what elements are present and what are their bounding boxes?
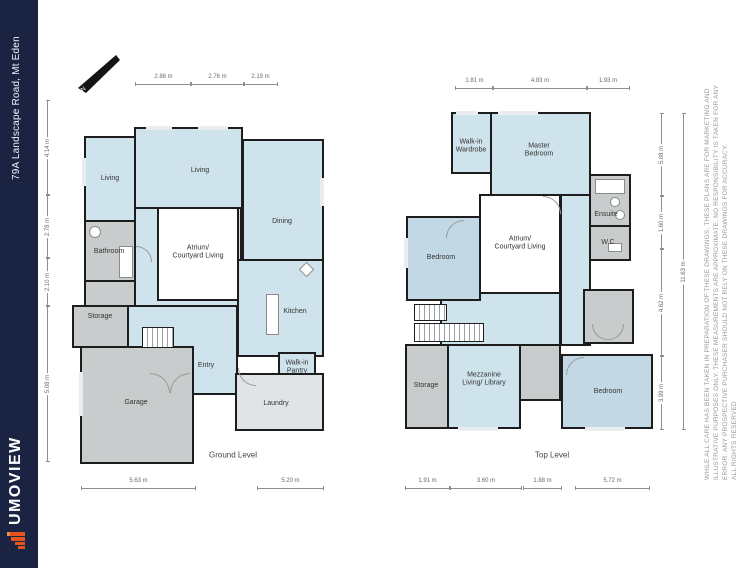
room-label: Storage xyxy=(414,382,439,390)
room-label: Ensuite xyxy=(594,211,617,219)
stairs-top-upper xyxy=(414,304,447,321)
window xyxy=(146,126,172,130)
room-hall-nook xyxy=(84,280,136,307)
dim-label: 2.19 m xyxy=(249,74,271,80)
dim-label: 11.63 m xyxy=(681,259,687,284)
plan-title-ground: Ground Level xyxy=(209,451,257,460)
dim-label: 5.08 m xyxy=(659,144,665,166)
window xyxy=(320,178,324,206)
dim-label: 2.86 m xyxy=(152,74,174,80)
ensuite-bath xyxy=(595,179,625,194)
dim-label: 4.14 m xyxy=(45,137,51,159)
room-storage-ground xyxy=(72,305,129,348)
room-label: Bedroom xyxy=(594,388,622,396)
dim-label: 2.78 m xyxy=(45,215,51,237)
dim-label: 5.20 m xyxy=(279,478,301,484)
room-label: Entry xyxy=(198,362,214,370)
room-label: Atrium/ Courtyard Living xyxy=(488,236,552,253)
room-label: Dining xyxy=(272,218,292,226)
brand-sidebar: 79A Landscape Road, Mt Eden UMOVIEW xyxy=(0,0,38,568)
window xyxy=(498,111,538,115)
room-kitchen xyxy=(237,259,324,357)
stairs-top-lower xyxy=(414,323,484,342)
kitchen-island xyxy=(266,294,279,335)
dim-label: 1.93 m xyxy=(597,78,619,84)
window xyxy=(585,427,625,431)
disclaimer-line: WHILE ALL CARE HAS BEEN TAKEN IN PREPARA… xyxy=(703,50,712,480)
plan-title-top: Top Level xyxy=(535,451,569,460)
dim-label: 3.99 m xyxy=(659,381,665,403)
umoview-logo-icon xyxy=(6,530,26,550)
property-address: 79A Landscape Road, Mt Eden xyxy=(11,20,22,180)
disclaimer-line: ERROR. ANY PROSPECTIVE PURCHASER SHOULD … xyxy=(721,50,730,480)
dim-label: 1.60 m xyxy=(659,211,665,233)
room-label: Kitchen xyxy=(283,308,306,316)
room-label: Mezzanine Living/ Library xyxy=(452,372,516,389)
room-dining xyxy=(242,139,324,261)
bathroom-sink xyxy=(89,226,101,238)
room-label: Walk-in Wardrobe xyxy=(449,139,493,156)
room-label: Living xyxy=(191,167,209,175)
room-label: Living xyxy=(101,175,119,183)
disclaimer-text: WHILE ALL CARE HAS BEEN TAKEN IN PREPARA… xyxy=(703,50,739,480)
room-label: W.C xyxy=(601,239,614,247)
room-landing-void xyxy=(519,344,561,401)
dim-label: 3.60 m xyxy=(475,478,497,484)
ensuite-sink xyxy=(610,197,620,207)
dim-label: 5.72 m xyxy=(601,478,623,484)
brand-logo: UMOVIEW xyxy=(6,436,26,550)
stairs-ground xyxy=(142,327,174,348)
room-label: Master Bedroom xyxy=(514,143,564,160)
room-label: Walk-in Pantry xyxy=(278,360,316,377)
dim-label: 1.88 m xyxy=(531,478,553,484)
dim-label: 1.91 m xyxy=(416,478,438,484)
dim-label: 1.81 m xyxy=(463,78,485,84)
brand-name: UMOVIEW xyxy=(7,436,25,525)
room-label: Atrium/ Courtyard Living xyxy=(166,245,230,262)
room-living-main xyxy=(134,127,243,211)
window xyxy=(82,158,86,186)
dim-label: 2.76 m xyxy=(206,74,228,80)
room-label: Bathroom xyxy=(94,248,124,256)
dim-label: 5.08 m xyxy=(45,372,51,394)
window xyxy=(404,238,408,268)
north-arrow-icon: N xyxy=(76,52,124,96)
room-label: Bedroom xyxy=(427,254,455,262)
room-label: Storage xyxy=(88,313,113,321)
room-label: Garage xyxy=(124,399,147,407)
floorplan-page: 79A Landscape Road, Mt Eden UMOVIEW WHIL… xyxy=(0,0,749,568)
disclaimer-line: ALL RIGHTS RESERVED xyxy=(730,50,739,480)
window xyxy=(456,111,478,115)
window xyxy=(458,427,498,431)
dim-label: 4.83 m xyxy=(529,78,551,84)
room-label: Laundry xyxy=(263,400,288,408)
window xyxy=(198,126,228,130)
disclaimer-line: ILLUSTRATIVE PURPOSES ONLY. THESE MEASUR… xyxy=(712,50,721,480)
garage-door-opening xyxy=(79,372,83,416)
dim-label: 5.63 m xyxy=(127,478,149,484)
dim-label: 2.10 m xyxy=(45,271,51,293)
dim-label: 4.62 m xyxy=(659,291,665,313)
